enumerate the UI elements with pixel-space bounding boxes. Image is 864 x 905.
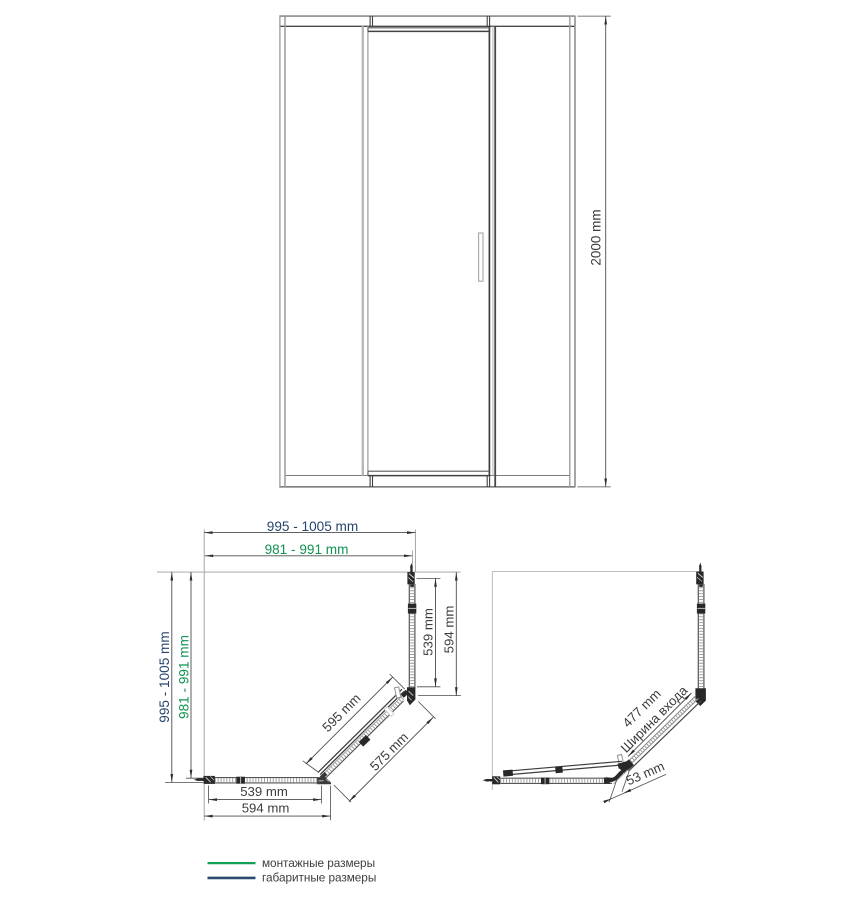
svg-text:594 mm: 594 mm: [441, 606, 456, 654]
svg-text:594 mm: 594 mm: [242, 800, 290, 815]
svg-text:габаритные размеры: габаритные размеры: [262, 871, 376, 885]
svg-text:995 - 1005 mm: 995 - 1005 mm: [157, 631, 172, 722]
svg-text:995 - 1005 mm: 995 - 1005 mm: [267, 519, 358, 534]
svg-text:981 - 991 mm: 981 - 991 mm: [177, 635, 192, 719]
svg-text:монтажные размеры: монтажные размеры: [262, 856, 375, 870]
svg-text:539 mm: 539 mm: [420, 608, 435, 656]
svg-text:575 mm: 575 mm: [367, 729, 411, 773]
svg-text:539 mm: 539 mm: [240, 784, 288, 799]
svg-text:981 - 991 mm: 981 - 991 mm: [265, 542, 349, 557]
svg-text:2000 mm: 2000 mm: [589, 209, 604, 265]
